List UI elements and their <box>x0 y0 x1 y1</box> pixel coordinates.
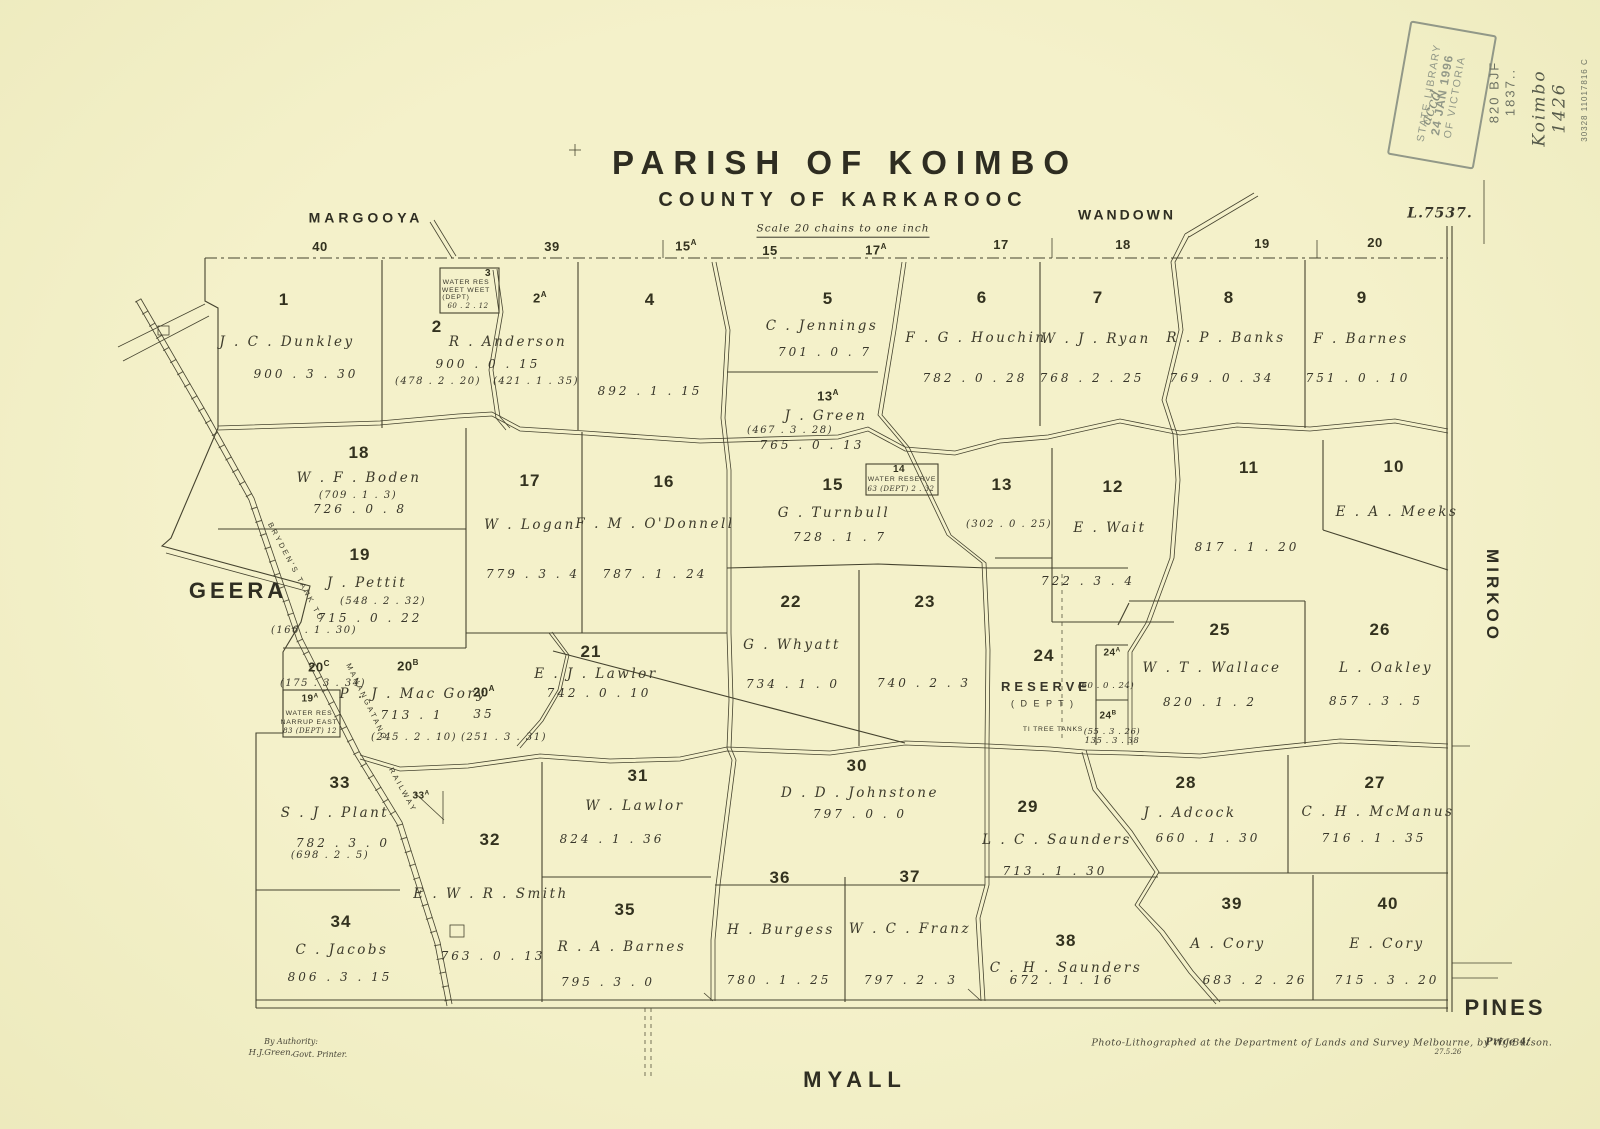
parcel-p33-alt: (698 . 2 . 5) <box>291 850 369 862</box>
parcel-p17-number: 17 <box>520 471 541 491</box>
parcel-p18-alt: (709 . 1 . 3) <box>319 490 397 502</box>
call-number-line2: 1837.. <box>1502 61 1518 123</box>
parcel-p16-number: 16 <box>654 472 675 492</box>
parcel-p32-area: 763 . 0 . 13 <box>441 949 546 963</box>
parcel-p19-alt2: (166 . 1 . 30) <box>271 625 357 637</box>
parcel-p12-area: 722 . 3 . 4 <box>1041 574 1135 588</box>
parcel-p27-owner: C . H . McManus <box>1302 804 1455 820</box>
parcel-p19a-res1: WATER RES <box>286 710 333 718</box>
parcel-p15-area: 728 . 1 . 7 <box>793 530 887 544</box>
parcel-p2-number: 2 <box>432 317 442 337</box>
parcel-p14-res1: WATER RESERVE <box>868 476 936 484</box>
parcel-p10-owner: E . A . Meeks <box>1336 504 1459 520</box>
parcel-p12-owner: E . Wait <box>1073 520 1146 536</box>
parcel-p19-number: 19 <box>350 545 371 565</box>
parcel-p33a-number: 33A <box>412 789 429 802</box>
pencil-year: 1426 <box>1550 69 1570 146</box>
parish-map-sheet: PARISH OF KOIMBO COUNTY OF KARKAROOC Sca… <box>0 0 1600 1129</box>
parcel-p20b-alt: (245 . 2 . 10) <box>371 732 457 744</box>
parcel-p20b-area: 713 . 1 <box>381 708 444 722</box>
parcel-p13-alt: (302 . 0 . 25) <box>966 519 1052 531</box>
parcel-p33-owner: S . J . Plant <box>281 805 389 821</box>
scale-note: Scale 20 chains to one inch <box>757 223 930 238</box>
parcel-p13a-number: 13A <box>817 388 839 404</box>
parcel-p40-number: 40 <box>1378 894 1399 914</box>
parcel-p24-res1: TI TREE TANKS <box>1023 726 1083 734</box>
parcel-p19a-suffix: A <box>314 692 319 699</box>
parcel-p17-owner: W . Logan <box>484 517 576 533</box>
parcel-p24-number: 24 <box>1034 646 1055 666</box>
parcel-p27-number: 27 <box>1365 773 1386 793</box>
parcel-p34-number: 34 <box>331 912 352 932</box>
parcel-p20b-suffix: B <box>413 658 419 667</box>
parcel-p20a-area: 35 <box>473 707 494 721</box>
parcel-p5-area: 701 . 0 . 7 <box>778 345 872 359</box>
adjoining-allotment-number-39: 39 <box>544 239 559 255</box>
parcel-p26-owner: L . Oakley <box>1339 660 1433 676</box>
parcel-p25-area: 820 . 1 . 2 <box>1163 695 1257 709</box>
parcel-p38-area: 672 . 1 . 16 <box>1010 973 1115 987</box>
parcel-p3-area: 60 . 2 . 12 <box>447 302 488 310</box>
railway-siding-marker <box>450 925 464 937</box>
parcel-p4-area: 892 . 1 . 15 <box>598 384 703 398</box>
adjoining-allotment-number-15: 15 <box>762 243 777 259</box>
pencil-name: Koimbo <box>1530 69 1550 146</box>
parcel-p1-area: 900 . 3 . 30 <box>254 367 359 381</box>
parcel-p30-area: 797 . 0 . 0 <box>813 807 907 821</box>
adjoining-allotment-number-40: 40 <box>312 239 327 255</box>
parcel-p21-area: 742 . 0 . 10 <box>547 686 652 700</box>
adjoining-number-suffix: A <box>881 242 887 251</box>
parcel-p36-number: 36 <box>770 868 791 888</box>
adjoining-parish-margooya: MARGOOYA <box>309 210 424 227</box>
parcel-p28-number: 28 <box>1176 773 1197 793</box>
parcel-p8-number: 8 <box>1224 288 1234 308</box>
parcel-p28-area: 660 . 1 . 30 <box>1156 831 1261 845</box>
parcel-p37-owner: W . C . Franz <box>849 921 971 937</box>
parcel-p7-number: 7 <box>1093 288 1103 308</box>
adjoining-parish-wandown: WANDOWN <box>1078 207 1176 224</box>
parcel-p36-owner: H . Burgess <box>727 922 835 938</box>
parcel-p38-number: 38 <box>1056 931 1077 951</box>
parcel-p26-area: 857 . 3 . 5 <box>1329 694 1423 708</box>
parcel-p18-owner: W . F . Boden <box>297 470 422 486</box>
parcel-p20a-number: 20A <box>473 684 495 700</box>
parcel-p24a-alt: (60 . 0 . 24) <box>1078 681 1134 691</box>
price-note: Price 4/ <box>1486 1036 1531 1047</box>
parcel-p3-res1: WATER RES <box>443 279 490 287</box>
parcel-p13a-alt: (467 . 3 . 28) <box>747 425 833 437</box>
pencil-call-number: 820 BJF 1837.. <box>1486 61 1517 123</box>
parcel-p39-owner: A . Cory <box>1190 936 1265 952</box>
lithography-imprint: Photo-Lithographed at the Department of … <box>1092 1037 1553 1048</box>
parcel-p36-area: 780 . 1 . 25 <box>727 973 832 987</box>
parcel-p30-owner: D . D . Johnstone <box>781 785 939 801</box>
parcel-p31-owner: W . Lawlor <box>585 798 684 814</box>
parcel-p31-area: 824 . 1 . 36 <box>560 832 665 846</box>
parcel-p12-number: 12 <box>1103 477 1124 497</box>
parcel-p24b-area: 135 . 3 . 38 <box>1085 736 1140 746</box>
railway-line <box>136 301 447 1006</box>
adjoining-number-suffix: A <box>691 238 697 247</box>
parcel-p40-area: 715 . 3 . 20 <box>1335 973 1440 987</box>
parcel-p35-owner: R . A . Barnes <box>558 939 687 955</box>
adjoining-allotment-number-15A: 15A <box>675 238 697 254</box>
parcel-p24b-suffix: B <box>1112 709 1117 716</box>
parcel-p32-owner: E . W . R . Smith <box>413 886 569 902</box>
parcel-p18-number: 18 <box>349 443 370 463</box>
parcel-p22-number: 22 <box>781 592 802 612</box>
parcel-p40-owner: E . Cory <box>1349 936 1424 952</box>
parcel-p25-owner: W . T . Wallace <box>1142 660 1281 676</box>
parcel-p9-owner: F . Barnes <box>1313 331 1408 347</box>
parcel-p2a-suffix: A <box>541 290 547 299</box>
authority-imprint-line1: By Authority: <box>264 1037 318 1047</box>
adjoining-allotment-number-17: 17 <box>993 237 1008 253</box>
parcel-p11-area: 817 . 1 . 20 <box>1195 540 1300 554</box>
parcel-p28-owner: J . Adcock <box>1143 805 1236 821</box>
parcel-p1-owner: J . C . Dunkley <box>219 334 354 350</box>
parcel-p9-area: 751 . 0 . 10 <box>1306 371 1411 385</box>
adjoining-allotment-number-19: 19 <box>1254 236 1269 252</box>
parcel-p16-area: 787 . 1 . 24 <box>603 567 708 581</box>
parcel-p39-number: 39 <box>1222 894 1243 914</box>
plan-reference: L.7537. <box>1407 206 1473 223</box>
parcel-p39-area: 683 . 2 . 26 <box>1203 973 1308 987</box>
parcel-p29-number: 29 <box>1018 797 1039 817</box>
parcel-p7-area: 768 . 2 . 25 <box>1040 371 1145 385</box>
parcel-p13a-suffix: A <box>833 388 839 397</box>
parcel-p18-area: 726 . 0 . 8 <box>313 502 407 516</box>
parcel-p8-owner: R . P . Banks <box>1166 330 1285 346</box>
parcel-p34-owner: C . Jacobs <box>296 942 389 958</box>
parcel-p5-owner: C . Jennings <box>766 318 879 334</box>
parcel-p23-area: 740 . 2 . 3 <box>877 676 971 690</box>
parcel-p20c-suffix: C <box>324 659 330 668</box>
parcel-p37-area: 797 . 2 . 3 <box>864 973 958 987</box>
parcel-p29-owner: L . C . Saunders <box>982 832 1132 848</box>
parcel-p20b-owner: P . J . Mac Gory <box>340 686 487 702</box>
parcel-p17-area: 779 . 3 . 4 <box>486 567 580 581</box>
parcel-p15-owner: G . Turnbull <box>778 505 890 521</box>
adjoining-allotment-number-17A: 17A <box>865 242 887 258</box>
parcel-p33-area: 782 . 3 . 0 <box>296 836 390 850</box>
parcel-p2-owner: R . Anderson <box>449 334 567 350</box>
adjoining-parish-myall: MYALL <box>803 1067 907 1093</box>
parcel-p19-area: 715 . 0 . 22 <box>318 611 423 625</box>
parcel-p32-number: 32 <box>480 830 501 850</box>
parcel-p14-area: 63 (DEPT) 2 . 32 <box>868 485 935 493</box>
parcel-p24a-number: 24A <box>1103 646 1120 659</box>
adjoining-parish-mirkoo: MIRKOO <box>1482 549 1502 643</box>
parcel-p31-number: 31 <box>628 766 649 786</box>
parcel-p14-number: 14 <box>893 464 905 476</box>
adjoining-parish-geera: GEERA <box>189 578 287 604</box>
lithography-date: 27.5.26 <box>1435 1048 1462 1056</box>
parcel-p19-owner: J . Pettit <box>327 575 407 591</box>
parcel-p26-number: 26 <box>1370 620 1391 640</box>
parcel-p24a-suffix: A <box>1116 646 1121 653</box>
parcel-p11-number: 11 <box>1239 458 1259 478</box>
parcel-p7-owner: W . J . Ryan <box>1041 331 1150 347</box>
authority-imprint-name: H.J.Green, <box>249 1048 294 1058</box>
parcel-p9-number: 9 <box>1357 288 1367 308</box>
parcel-p23-number: 23 <box>915 592 936 612</box>
parcel-p2-alt: (478 . 2 . 20) <box>395 376 481 388</box>
railway-sleepers <box>138 300 449 1006</box>
parcel-p37-number: 37 <box>900 867 921 887</box>
pencil-barcode-number: 30328 11017816 C <box>1580 58 1590 141</box>
parcel-p33-number: 33 <box>330 773 351 793</box>
adjoining-allotment-number-18: 18 <box>1115 237 1130 253</box>
map-title: PARISH OF KOIMBO <box>612 143 1078 183</box>
parcel-p19-alt: (548 . 2 . 32) <box>340 596 426 608</box>
parcel-p35-area: 795 . 3 . 0 <box>561 975 655 989</box>
parcel-p24-alt: ( D E P T ) <box>1011 699 1075 710</box>
parcel-p6-area: 782 . 0 . 28 <box>923 371 1028 385</box>
parcel-p21-owner: E . J . Lawlor <box>534 666 657 682</box>
parcel-p13a-owner: J . Green <box>785 408 868 424</box>
parcel-p34-area: 806 . 3 . 15 <box>288 970 393 984</box>
parcel-p33a-suffix: A <box>425 789 430 796</box>
map-subtitle: COUNTY OF KARKAROOC <box>658 188 1027 212</box>
parcel-p22-area: 734 . 1 . 0 <box>746 677 840 691</box>
parcel-p10-number: 10 <box>1384 457 1405 477</box>
parcel-p13-number: 13 <box>992 475 1013 495</box>
parcel-p15-number: 15 <box>823 475 844 495</box>
parcel-p6-owner: F . G . Houchin <box>905 330 1046 346</box>
parcel-p19a-number: 19A <box>301 692 318 705</box>
adjoining-parish-pines: PINES <box>1464 995 1545 1021</box>
parcel-p20a-alt: (251 . 3 . 31) <box>461 732 547 744</box>
parcel-p2a-alt: (421 . 1 . 35) <box>493 376 579 388</box>
parcel-p20b-number: 20B <box>397 658 419 674</box>
parcel-p25-number: 25 <box>1210 620 1231 640</box>
parcel-p2-area: 900 . 0 . 15 <box>436 357 541 371</box>
parcel-p16-owner: F . M . O'Donnell <box>575 516 734 532</box>
parcel-p2a-number: 2A <box>533 290 547 306</box>
call-number-line1: 820 BJF <box>1486 61 1502 123</box>
authority-imprint-role: Govt. Printer. <box>293 1050 347 1060</box>
adjoining-allotment-number-20: 20 <box>1367 235 1382 251</box>
parcel-p29-area: 713 . 1 . 30 <box>1003 864 1108 878</box>
parcel-p19a-area: 83 (DEPT) 12 <box>283 727 337 735</box>
parcel-p1-number: 1 <box>279 290 289 310</box>
parcel-p27-area: 716 . 1 . 35 <box>1322 831 1427 845</box>
parcel-p21-number: 21 <box>581 642 602 662</box>
parcel-p8-area: 769 . 0 . 34 <box>1170 371 1275 385</box>
parcel-p30-number: 30 <box>847 756 868 776</box>
parcel-p4-number: 4 <box>645 290 655 310</box>
parcel-p13a-area: 765 . 0 . 13 <box>760 438 865 452</box>
parcel-p24b-number: 24B <box>1099 709 1116 722</box>
parcel-p22-owner: G . Whyatt <box>743 637 841 653</box>
pencil-title-note: Koimbo 1426 <box>1530 69 1571 146</box>
parcel-p5-number: 5 <box>823 289 833 309</box>
parcel-p20c-number: 20C <box>308 659 330 675</box>
parcel-p6-number: 6 <box>977 288 987 308</box>
parcel-p35-number: 35 <box>615 900 636 920</box>
parcel-p20a-suffix: A <box>489 684 495 693</box>
